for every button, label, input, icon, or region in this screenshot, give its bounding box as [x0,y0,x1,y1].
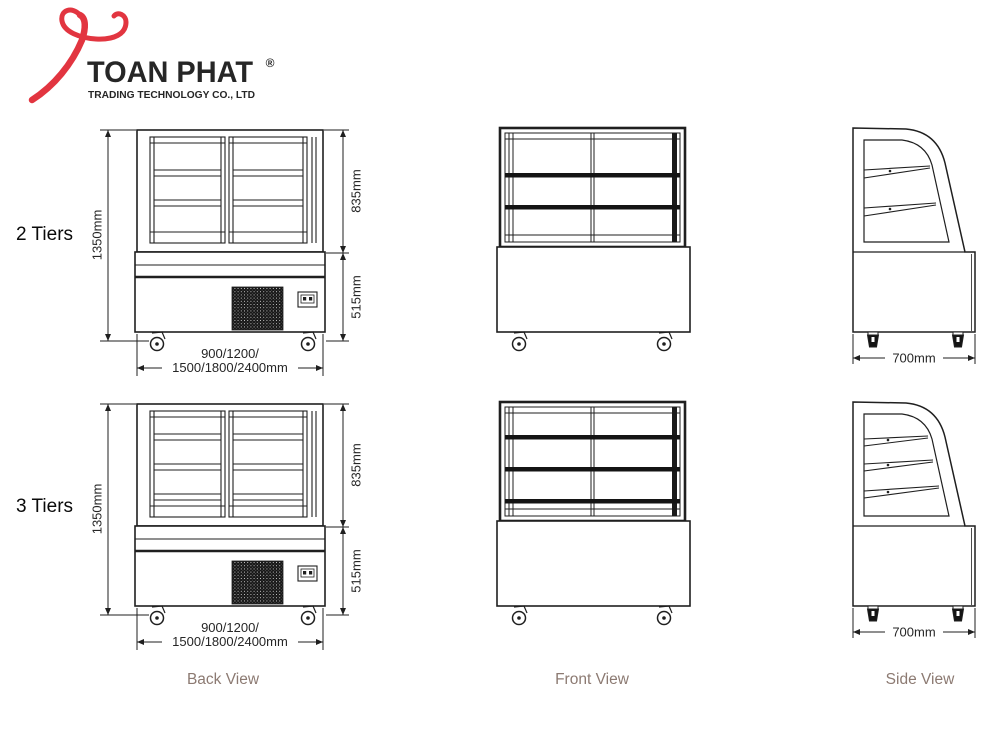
back-view-label: Back View [187,671,259,689]
thermostat-control [298,566,317,581]
product-spec-sheet: TOAN PHAT ® TRADING TECHNOLOGY CO., LTD … [0,0,1000,750]
logo-subtitle-text: TRADING TECHNOLOGY CO., LTD [88,89,255,101]
dim-depth: 700mm [892,625,935,640]
row-label-3-tiers: 3 Tiers [16,496,73,518]
condenser-grille [232,287,283,330]
back-view-2-tiers-drawing: 1350mm 835mm 515mm 900/1200/ 1500/1800/2… [90,118,380,386]
dim-width-line1: 900/1200/ [201,620,259,635]
side-view-2-tiers-drawing: 700mm [840,118,995,370]
registered-trademark-icon: ® [266,56,275,70]
casters [513,606,673,625]
condenser-grille [232,561,283,604]
logo-brand-text: TOAN PHAT [87,56,253,89]
front-view-3-tiers-drawing [492,392,702,632]
side-view-label: Side View [886,671,955,689]
side-view-3-tiers-drawing: 700mm [840,392,995,644]
dim-display-height: 835mm [349,443,364,486]
dim-width-line2: 1500/1800/2400mm [172,360,288,375]
dim-width-line2: 1500/1800/2400mm [172,634,288,649]
front-view-label: Front View [555,671,629,689]
feet [868,332,964,347]
dim-total-height: 1350mm [90,210,105,261]
dim-total-height: 1350mm [90,484,105,535]
casters [513,332,673,351]
dim-depth: 700mm [892,351,935,366]
company-logo: TOAN PHAT ® TRADING TECHNOLOGY CO., LTD [18,2,303,117]
dim-base-height: 515mm [349,549,364,592]
feet [868,606,964,621]
dim-base-height: 515mm [349,275,364,318]
thermostat-control [298,292,317,307]
back-view-3-tiers-drawing: 1350mm 835mm 515mm 900/1200/ 1500/1800/2… [90,392,380,660]
front-view-2-tiers-drawing [492,118,702,358]
frame-side-band [672,133,677,242]
dim-display-height: 835mm [349,169,364,212]
dim-width-line1: 900/1200/ [201,346,259,361]
row-label-2-tiers: 2 Tiers [16,224,73,246]
